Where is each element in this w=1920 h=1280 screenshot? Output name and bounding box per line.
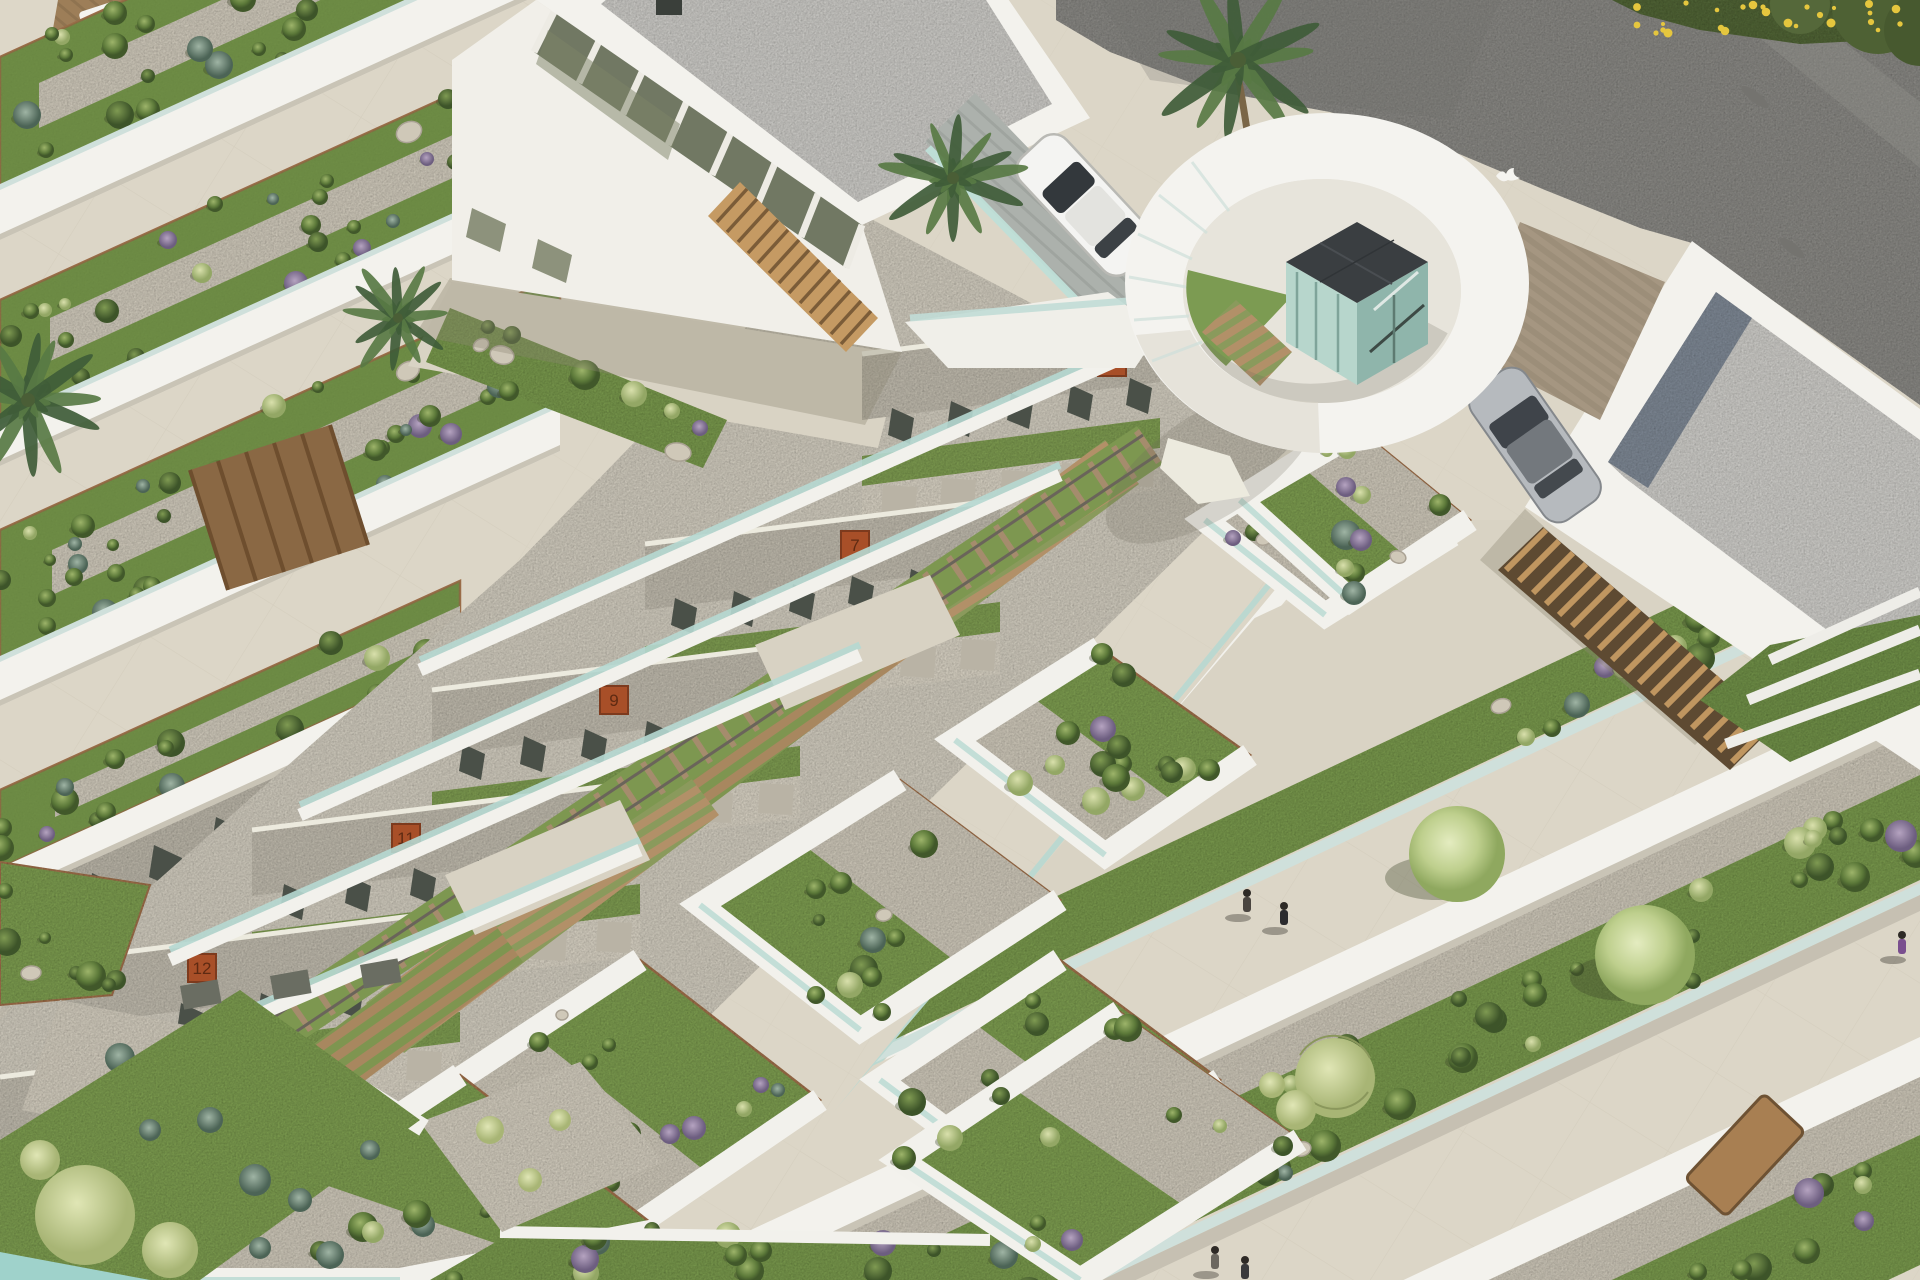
svg-text:9: 9 <box>609 691 618 710</box>
svg-text:12: 12 <box>193 959 212 978</box>
